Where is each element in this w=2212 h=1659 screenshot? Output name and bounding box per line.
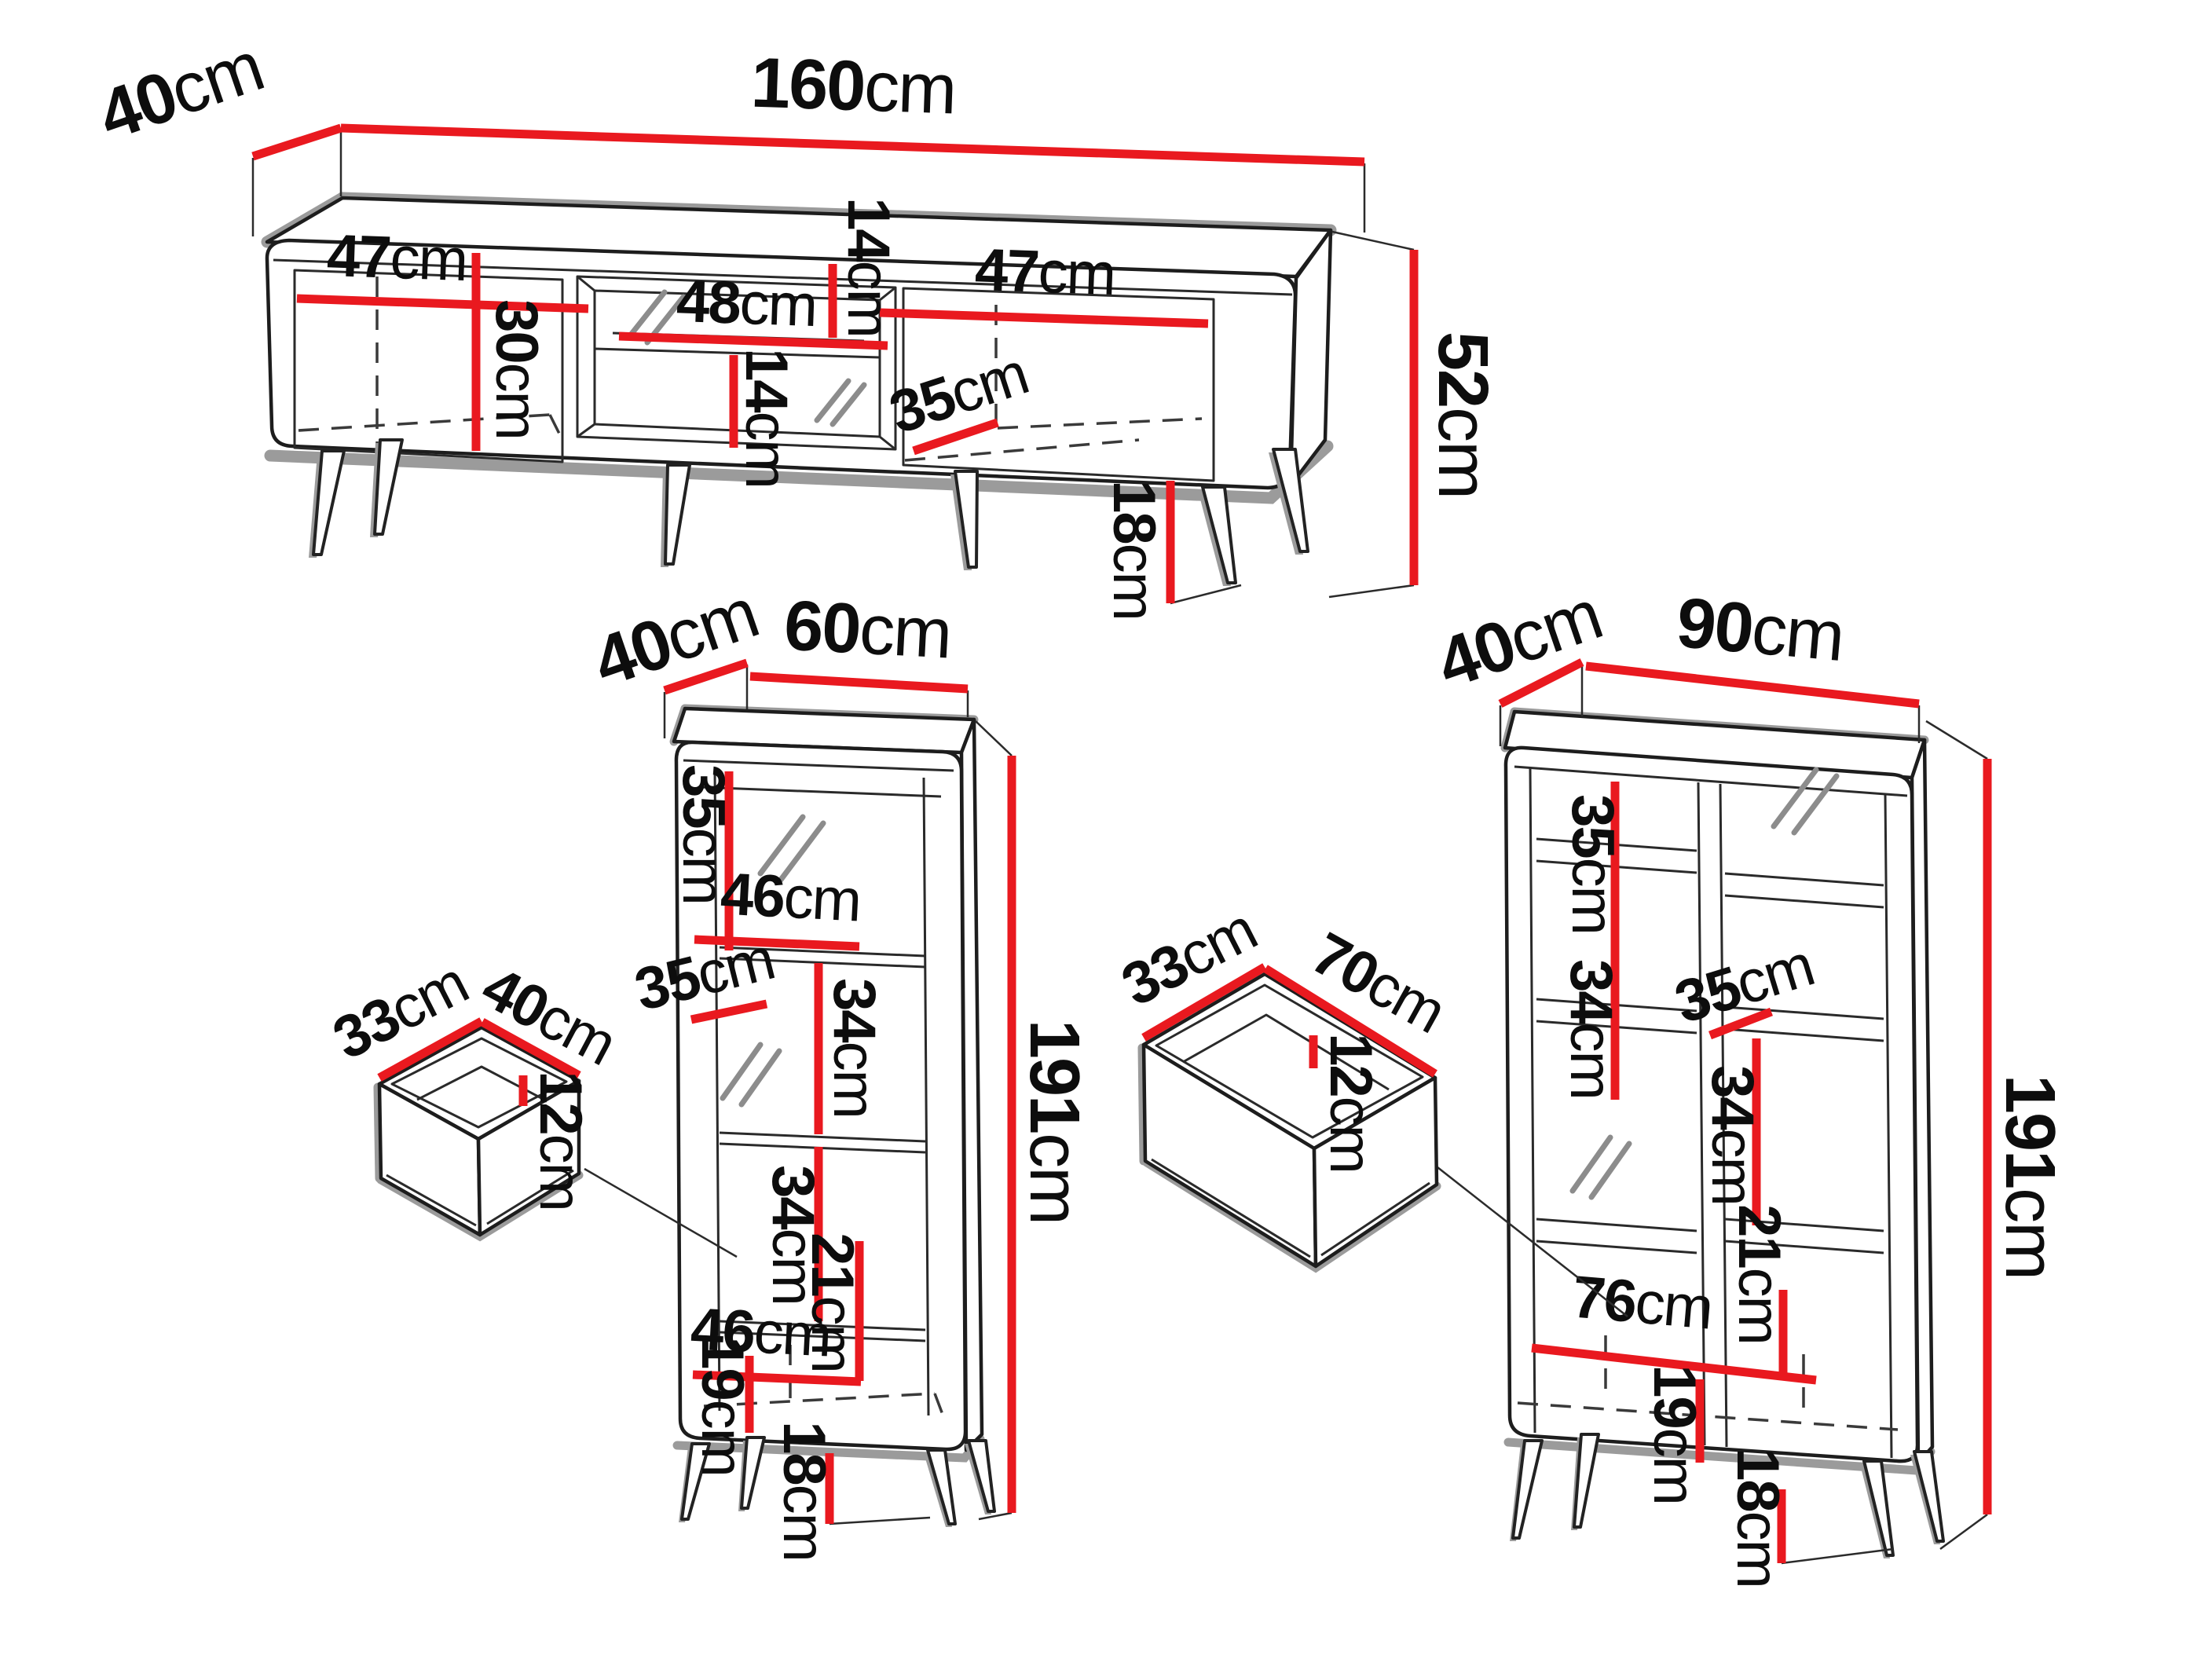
tv-niche-top-label: 14cm (835, 197, 902, 337)
c60-leg-label: 18cm (771, 1421, 837, 1561)
dimension-line-width (341, 128, 1364, 162)
furniture-dimension-diagram: 40cm 160cm 52cm 18cm 47cm 30cm 14cm 48cm… (0, 0, 2212, 1659)
tv-stand: 40cm 160cm 52cm 18cm 47cm 30cm 14cm 48cm… (89, 27, 1502, 620)
dimension-line-width (750, 676, 968, 689)
c90-depth-label: 40cm (1427, 575, 1610, 704)
c90-bottom-h-label: 19cm (1641, 1364, 1708, 1504)
c90-lower-h-label: 21cm (1726, 1204, 1793, 1344)
cabinet-90: 40cm 90cm 191cm 35cm 34cm 35cm 34cm 76cm… (1427, 575, 2069, 1588)
c60-height-label: 191cm (1015, 1020, 1093, 1224)
c90-lower-w-label: 76cm (1569, 1264, 1715, 1342)
c90-leg-back-right (1914, 1452, 1943, 1541)
dimension-line-depth (253, 128, 341, 156)
c60-shelf-w-label: 46cm (719, 860, 862, 934)
c90-height-label: 191cm (1990, 1075, 2069, 1279)
c90-leg-label: 18cm (1724, 1448, 1791, 1588)
tv-width-label: 160cm (749, 43, 956, 129)
tv-depth-label: 40cm (89, 27, 272, 156)
c90-width-label: 90cm (1674, 584, 1847, 676)
tv-leg-mid-left (665, 465, 690, 564)
tv-door-right-w-label: 47cm (974, 236, 1116, 308)
dl-height-label: 12cm (1317, 1033, 1384, 1173)
c90-left-s2-label: 34cm (1558, 959, 1624, 1099)
tv-niche-w-label: 48cm (676, 268, 818, 339)
c90-right-s-label: 34cm (1699, 1065, 1766, 1205)
diagram-canvas: 40cm 160cm 52cm 18cm 47cm 30cm 14cm 48cm… (0, 0, 2212, 1659)
ds-height-label: 12cm (527, 1071, 594, 1210)
c90-left-s1-label: 35cm (1559, 794, 1626, 934)
c60-lower-h-label: 21cm (799, 1232, 866, 1372)
tv-door-left-h-label: 30cm (483, 299, 550, 439)
c90-leg-front-left (1513, 1441, 1542, 1538)
tv-height-label: 52cm (1423, 331, 1502, 498)
c60-bottom-h-label: 19cm (689, 1336, 756, 1476)
tv-leg-label: 18cm (1101, 480, 1167, 620)
c90-leg-front-right (1864, 1461, 1893, 1555)
tv-door-left-w-label: 47cm (326, 222, 468, 294)
dimension-line-width (1586, 666, 1919, 704)
tv-leg-back-left (375, 440, 402, 534)
tv-niche-bot-label: 14cm (733, 348, 800, 488)
c60-s2-label: 34cm (821, 978, 888, 1118)
cabinet-60: 40cm 60cm 191cm 35cm 46cm 34cm 35cm 34cm… (584, 573, 1093, 1561)
c60-width-label: 60cm (782, 586, 953, 673)
